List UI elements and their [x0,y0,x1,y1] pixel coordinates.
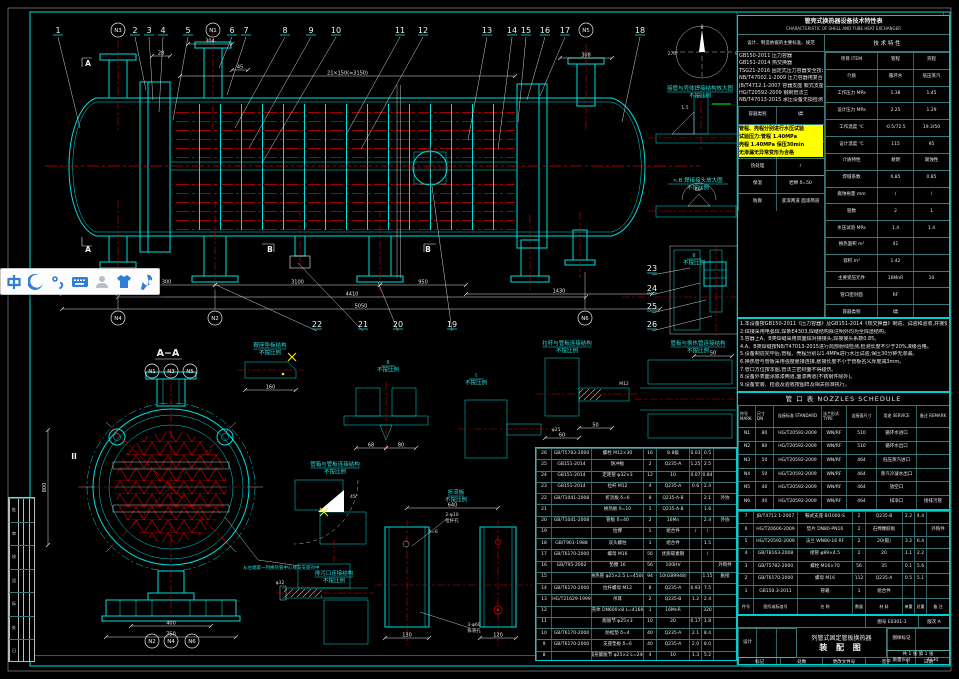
view-mark: II [71,452,77,461]
callout-label: 4 [160,26,165,35]
table-row: 介质循环水低压蒸汽 [825,69,949,86]
table-row: 设 [9,569,34,593]
user-icon[interactable] [93,272,111,292]
callout-label: 10 [331,26,341,35]
dim-text: 21×150(=3150) [327,71,368,77]
table-cell: 接管 φ89×4.5 [797,549,852,560]
margin-rev-table: 批审校设标处日 [8,497,35,662]
annotation: δ=6 [428,529,438,535]
table-cell: Q235-A [656,460,689,470]
table-cell: 1.1 [902,549,914,560]
table-cell: 3 [738,562,753,573]
table-cell: N5 [738,482,755,495]
table-row: N280HG/T20592-2009WN/RF510循环水出口 [738,441,949,455]
table-cell [913,255,949,271]
table-row: 24GB151-2014定距管 φ32×312100.070.84 [536,471,736,482]
table-cell: 2 [877,204,913,220]
leader-line [652,283,700,295]
table-cell: 1.6 [701,505,713,515]
table-cell: 组合件 [656,528,689,538]
table-cell: / [689,528,701,538]
section-a-a [78,359,300,621]
table-cell: 1.45 [913,87,949,103]
bom-right-header: 件号图号或标准号名 称数量材 料单重总重备 注 [738,598,949,615]
header-cell: 件号 [738,599,753,615]
table-cell: 20 [656,618,689,628]
dim-text: 80 [398,443,404,449]
nozzle-label: N5 [186,369,194,375]
punctuation-icon[interactable] [49,272,67,292]
table-cell: HG/T20592-2009 [773,469,821,482]
bom-right-rows: 7JB/T4712.1-2007鞍式支座 BⅠ1000-S2Q235-B2.24… [738,511,949,598]
table-cell: N6 [738,496,755,509]
table-cell [29,570,34,593]
table-cell: 16 [536,562,551,572]
table-row: 23GB151-2014拉杆 M124Q235-A0.62.4 [536,482,736,493]
dim-text: 50 [710,351,716,357]
callout-label: 20 [393,320,403,329]
table-row: 7JB/T4712.1-2007鞍式支座 BⅠ1000-S2Q235-B2.24… [738,511,949,523]
wrench-icon[interactable] [137,272,155,292]
table-cell: 94 [643,573,656,583]
char-left-rows2: 热处理/保温岩棉 δ=50防腐底漆两道 面漆两道 [738,158,824,176]
table-cell: 18 [536,539,551,549]
table-cell: 垫圈 16 [591,562,643,572]
table-cell: 40 [755,482,773,495]
table-cell: 定距管 φ32×3 [591,472,643,482]
table-cell [916,455,949,468]
table-cell: 7 [738,512,753,523]
table-cell: / [913,188,949,204]
table-cell [689,539,701,549]
table-row: 14GB/T6170-2000拉杆螺母 M128Q235-A0.937.5 [536,583,736,594]
table-cell: GB151-2014 [551,460,591,470]
half-moon-icon[interactable] [27,272,45,292]
table-cell: Q235-A·B [656,494,689,504]
table-cell: 112 [852,574,865,585]
table-cell: 10(GB9948) [656,573,689,583]
callout-label: 12 [418,26,428,35]
annotation: 3-φ60 [467,622,480,628]
detail-title: 不按比例 [323,577,346,585]
table-row: 1GB150.3-2011管箱1组合件 [738,585,949,597]
table-cell: 1.29 [913,103,949,119]
table-cell: GB151-2014 [551,483,591,493]
table-cell: 易燃 [877,154,913,170]
dim-text: 45 [237,65,243,71]
highlighted-notes: 管程、壳程分别进行水压试验试验压力:管程 1.40MPa壳程 1.40MPa 保… [738,124,824,158]
table-cell [689,494,701,504]
table-cell: 容器类别 [738,107,776,124]
table-cell: 4.4 [914,512,926,523]
table-cell: -0.5/72.5 [877,120,913,136]
table-cell: GB/T8163-2008 [753,549,797,560]
table-cell: 换热面积 m² [825,238,877,254]
table-cell [926,562,949,573]
table-cell: GB150.3-2011 [753,586,797,597]
table-row: 2GB/T6170-2000螺母 M16112Q235-A0.55.1 [738,573,949,585]
table-cell: 17 [536,550,551,560]
table-cell: 膨胀节 φ25×3 [591,618,643,628]
table-row: 16GB/T95-2002垫圈 1656100HV外购件 [536,561,736,572]
table-cell [713,595,736,605]
table-cell [689,573,701,583]
table-cell: 11 [536,618,551,628]
table-cell: 拉杆螺母 M12 [591,584,643,594]
table-cell: 0.84 [701,472,713,482]
table-row: 换热面积 m²41 [825,237,949,254]
table-cell: WN/RF [821,482,846,495]
table-cell [713,460,736,470]
table-cell [689,505,701,515]
view-mark: B [425,245,431,254]
table-cell: 115 [877,137,913,153]
table-cell: 100HV [656,562,689,572]
dim-text: 800 [42,483,48,493]
table-cell [29,640,34,662]
table-cell [913,305,949,318]
table-cell: 40 [755,496,773,509]
header-cell: 符号 MARK [738,406,755,427]
table-cell: 低压蒸汽 [913,70,949,86]
table-cell: WN/RF [821,428,846,441]
table-cell [916,482,949,495]
table-row: 管口密封面RF [825,287,949,304]
dim-text: 50 [592,423,598,429]
table-row: 程数21 [825,203,949,220]
table-cell: 1.3 [689,652,701,662]
table-cell: Q235-A [656,584,689,594]
table-cell: 56 [852,562,865,573]
text-line: 2.焊接采用电弧焊,焊条E4303,焊缝结构除注明外均为全焊透结构。 [740,329,947,337]
nozzle-schedule-title: 管 口 表 NOZZLES SCHEDULE [738,393,949,405]
keyboard-icon[interactable] [71,272,89,292]
detail-title: II [692,253,696,259]
table-cell: 1.8 [701,618,713,628]
table-cell [926,586,949,597]
sheet-count: 共 1 张 第 1 张 [887,650,949,657]
callout-label: 14 [507,26,517,35]
table-row: 标 [9,592,34,616]
table-cell: 7.5 [701,584,713,594]
header-cell: 数量 [852,599,865,615]
callout-label: 15 [521,26,531,35]
table-cell: 1.25 [689,460,701,470]
table-cell: Q235-A [656,640,689,650]
annotation: 45° [350,494,358,500]
table-cell: GB151-2014 [551,472,591,482]
dim-text: 120 [493,633,503,639]
table-row: 21换热板 δ=101Q235-A·B1.6 [536,504,736,515]
table-cell: 石棉橡胶板 [865,524,902,535]
table-cell: 9 [536,640,551,650]
table-cell: 19 [536,528,551,538]
table-cell: GB/T1041-2008 [551,517,591,527]
table-cell: 50 [755,455,773,468]
table-cell: 防松垫 δ=4 [591,629,643,639]
table-cell: 13 [536,595,551,605]
table-cell: 12 [643,472,656,482]
table-cell: 16MnR [877,272,913,288]
table-cell: GB/T901-1988 [551,539,591,549]
callout-label: 23 [647,264,657,273]
table-cell: 5 [738,537,753,548]
view-mark: B [267,245,273,254]
callout-label: 1 [55,26,60,35]
table-cell: GB/T6170-2000 [753,574,797,585]
table-cell: 510 [846,428,876,441]
table-cell: / [701,550,713,560]
annotation: 拉杆孔 [445,517,459,524]
table-cell [713,472,736,482]
table-cell: 图样标记 [887,629,915,650]
table-cell: 程数 [825,204,877,220]
skin-icon[interactable] [115,272,133,292]
table-cell: 1 [738,586,753,597]
table-cell [713,652,736,662]
table-cell: 设计温度 ℃ [825,137,877,153]
header-cell: 连接面尺寸 [846,406,876,427]
text-line: 3.容器上A、B类焊缝采用双面焊对接接头,焊接接头系数0.85。 [740,336,947,344]
view-mark: A−A [157,348,180,359]
table-cell [551,573,591,583]
table-cell: HG/T20592-2009 [773,442,821,455]
table-cell: 焊缝系数 [825,171,877,187]
table-cell: 螺母 M16 [591,550,643,560]
table-cell: 2 [738,574,753,585]
table-cell: 1.42 [877,255,913,271]
detail-title: 管箱与管板连接结构 [310,460,360,468]
table-cell: 20(锻) [865,537,902,548]
table-cell: 15 [536,573,551,583]
table-cell: 1 [643,505,656,515]
drawing-title: 列管式固定管板换热器 [811,633,871,642]
text-line: 7.管口方位按本图,管法兰密封面不得碰伤。 [740,367,947,375]
table-cell: 换热板 δ=10 [591,505,643,515]
table-cell: 4 [643,483,656,493]
table-cell [713,607,736,617]
table-cell: 510 [846,442,876,455]
callout-label: 2 [132,26,137,35]
table-cell: 2.0 [689,640,701,650]
table-cell: 320 [701,607,713,617]
text-line: HG/T20592-2009 钢制管法兰 [739,90,823,97]
table-cell: 0.93 [689,584,701,594]
table-cell: 介质特性 [825,154,877,170]
table-cell: 2.2 [902,512,914,523]
table-cell [689,607,701,617]
table-cell: 工作压力 MPa [825,87,877,103]
table-cell: 主要受压元件 [825,272,877,288]
table-row: 设计压力 MPa2.251.29 [825,102,949,119]
table-cell [551,607,591,617]
ime-toolbar [0,268,160,295]
table-cell: 吊耳 [591,595,643,605]
table-cell: 8.8级 [656,449,689,459]
table-cell [902,524,914,535]
table-cell: 56 [643,550,656,560]
header-cell: 尺寸 DN [755,406,773,427]
detail-title: 管板与换热管连接结构 [670,339,726,347]
detail-title: 不按比例 [445,496,468,504]
table-cell [713,584,736,594]
table-cell: 鞍式支座 BⅠ1000-S [797,512,852,523]
table-cell: Q235-B [656,595,689,605]
nozzle-header-row: 符号 MARK尺寸 DN连接标准 STANDARD法兰形式 TYPE连接面尺寸用… [738,405,949,427]
table-row: 工作温度 ℃-0.5/72.519.3/50 [825,119,949,136]
table-cell: 双头螺柱 [591,539,643,549]
table-cell [756,629,776,657]
table-cell: Q235-B [865,512,902,523]
table-row: N450HG/T20592-2009WN/RF464蒸汽冷凝水出口 [738,468,949,482]
header-cell: 单重 [902,599,914,615]
leader-line [214,284,317,331]
table-cell [926,512,949,523]
table-cell: 螺栓 M12×30 [591,449,643,459]
table-cell: 1.5 [701,539,713,549]
char-header-left: 设计、制造依据的主要标准、规范 [738,35,825,51]
table-cell: RF [877,288,913,304]
table-cell: 2 [643,517,656,527]
text-line: 6.换热管与管板采用强度胀接连接,胀接长度不小于管板名义厚度减3mm。 [740,359,947,367]
nozzle-label: N1 [209,28,217,34]
text-line: 无渗漏无异常变形为合格 [739,149,823,157]
table-row: N640HG/T20592-2009WN/RF464排净口接排污管 [738,495,949,509]
table-cell [29,617,34,640]
table-cell: 介质 [825,70,877,86]
table-cell: 拉杆 M12 [591,483,643,493]
text-line: NB/T47013-2015 承压设备无损检测 [739,97,823,104]
table-cell: 管箱 [797,586,852,597]
table-cell: 外购件 [713,562,736,572]
nozzle-label: N5 [582,28,590,34]
chinese-mode-icon[interactable] [5,272,23,292]
table-cell: 垫片 DN80-PN16 [797,524,852,535]
table-cell: 拉撑 [591,528,643,538]
table-row: 介质特性易燃腐蚀性 [825,153,949,170]
standards-list: GB150-2011 压力容器GB151-2014 热交换器TSG21-2016… [738,52,824,106]
table-cell: 腐蚀性 [913,154,949,170]
table-cell: Q235-A [656,629,689,639]
detail-title: 折流板 [448,488,465,496]
table-cell: 1 [852,586,865,597]
callout-label: 11 [395,26,405,35]
text-line: JB/T4712.1-2007 容器支座 鞍式支座 [739,83,823,90]
table-cell: GB/T5783-2000 [551,449,591,459]
table-cell: WN/RF [821,496,846,509]
table-cell: 工作温度 ℃ [825,120,877,136]
table-cell: 2 [643,460,656,470]
table-cell: HG/T20592-2009 [773,496,821,509]
table-row: 处 [9,616,34,640]
table-cell: 放空口 [876,482,916,495]
text-line: 壳程 1.40MPa 保压30min [739,141,823,149]
header-cell: 材 料 [865,599,902,615]
table-row: 日 [9,639,34,662]
table-cell: 蒸汽冷凝水出口 [876,469,916,482]
table-cell: 循环水出口 [876,442,916,455]
annotation: 0 [701,25,704,31]
table-cell: HG/T20606-2009 [753,524,797,535]
detail-title: 不按比例 [687,347,710,355]
table-row: 项目 ITEM管程壳程 [825,52,949,69]
table-cell: 22 [536,494,551,504]
table-cell: Ⅰ类 [776,107,824,124]
table-row: 焊缝系数0.850.85 [825,170,949,187]
text-line: 5.设备制造完毕后,管程、壳程分别以1.4MPa进行水压试验,保压30分钟无渗漏… [740,351,947,359]
table-cell: 设计压力 MPa [825,103,877,119]
leader-line [652,300,706,313]
callout-label: 6 [229,26,234,35]
char-header-right: 技 术 特 性 [825,35,949,51]
table-row: 设计 [738,628,796,657]
annotation: 从左端第一列换热管中心线与支座对中 [243,564,320,571]
table-cell [913,238,949,254]
table-cell: 56 [643,562,656,572]
nozzle-label: N3 [114,28,122,34]
table-cell: 35 [865,562,902,573]
callout-label: 8 [282,26,287,35]
table-cell: 80 [755,442,773,455]
table-cell: 1 [643,528,656,538]
detail-title: 不按比例 [689,92,712,100]
dim-text: 3100 [291,280,304,286]
char-title-en: CHARACTERISTIC OF SHELL AND TUBE HEAT EX… [738,26,949,34]
table-cell: 80 [755,428,773,441]
table-cell [713,550,736,560]
annotation: 60° [695,187,703,193]
char-title: 管壳式换热器设备技术特性表 [738,16,949,26]
table-cell [713,483,736,493]
table-cell: 管板 δ=40 [591,517,643,527]
table-cell: HG/T20592-2009 [773,482,821,495]
detail-title: I [475,373,477,379]
table-cell: 5.6 [914,562,926,573]
nozzle-rows: N180HG/T20592-2009WN/RF510循环水进口N280HG/T2… [738,427,949,509]
table-cell: N3 [738,455,755,468]
table-cell: N1 [738,428,755,441]
char-left-rows: 容器类别Ⅰ类焊接规程NB/T47015无损检测NB/T47013 [738,106,824,124]
table-cell: 校 [9,546,18,569]
table-cell: 1.38 [877,87,913,103]
table-row: 容积 m³1.42 [825,254,949,271]
table-cell: 0.17 [689,618,701,628]
table-cell [914,524,926,535]
table-cell: 胀接 [713,573,736,583]
table-cell: 5.1 [914,574,926,585]
callout-label: 21 [358,320,368,329]
table-cell: / [877,188,913,204]
table-cell: 4 [643,652,656,662]
table-cell: 2.4 [701,595,713,605]
table-cell: 折流板 δ=6 [591,494,643,504]
table-cell [713,505,736,515]
table-cell: 批 [9,499,18,522]
table-row: 容器类别Ⅰ类 [738,106,824,124]
table-cell: Ⅰ类 [877,305,913,318]
leader-line [149,37,153,100]
table-cell [926,549,949,560]
annotation: 1.5 [681,105,688,111]
dim-text: 300 [162,280,172,286]
table-cell: 水压试验 MPa [825,221,877,237]
callout-label: 3 [146,26,151,35]
revision: 版次 A [918,616,949,627]
dim-text: 28 [158,51,164,57]
table-cell: WN/RF [821,455,846,468]
view-mark: A [85,245,91,254]
table-cell: 0.03 [689,449,701,459]
